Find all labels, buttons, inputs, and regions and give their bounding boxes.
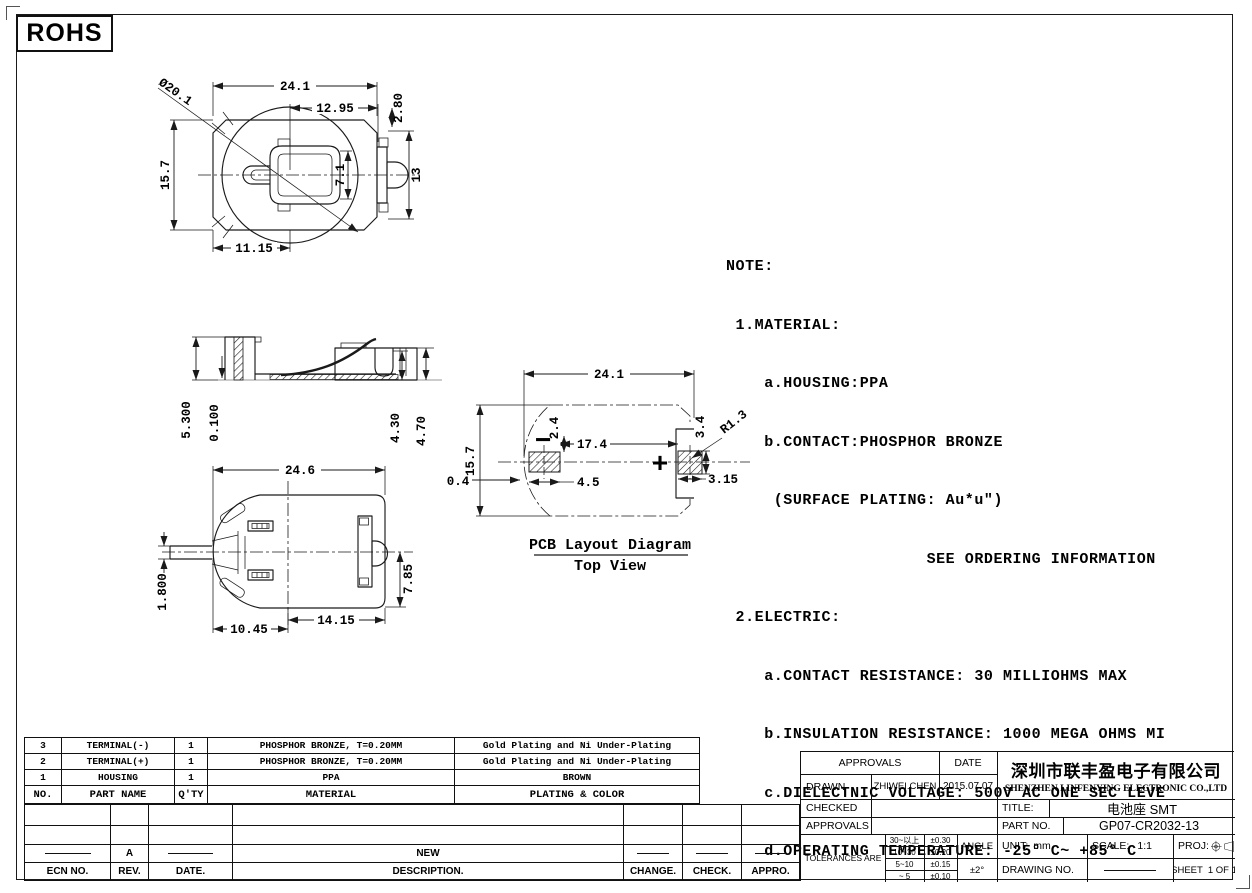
revision-header-cell: ECN NO. xyxy=(25,863,111,880)
bom-cell: 1 xyxy=(25,770,62,786)
revision-header-cell: CHANGE. xyxy=(624,863,683,880)
tolerance-value: ±0.15 xyxy=(924,858,957,870)
revision-cell xyxy=(25,845,111,863)
angle-label: ANGLE xyxy=(957,834,997,858)
pcb-caption-title: PCB Layout Diagram xyxy=(529,537,691,554)
revision-table: A NEW ECN NO. REV. DATE. DESCRIPTION. CH… xyxy=(24,804,800,881)
dim-label: 24.6 xyxy=(285,464,315,478)
dim-label: 0.100 xyxy=(208,404,222,442)
checked-label: CHECKED xyxy=(801,799,871,817)
sheet-label: SHEET xyxy=(1173,865,1203,876)
part-outline-top xyxy=(550,405,690,422)
projection-cell: PROJ: xyxy=(1173,834,1235,858)
bottom-view-dimensions: 24.6 1.800 10.45 14.15 7.85 xyxy=(156,464,416,637)
drawn-date: 2015.07.07 xyxy=(939,774,997,799)
dim-label: 2.4 xyxy=(548,416,562,439)
title-label: TITLE: xyxy=(997,799,1049,817)
dim-label: 4.70 xyxy=(415,416,429,446)
dim-label: 10.45 xyxy=(230,623,268,637)
drawing-sheet: ROHS 24.1 xyxy=(0,0,1252,893)
revision-cell xyxy=(742,845,799,863)
bom-cell: PPA xyxy=(208,770,455,786)
company-name-cn: 深圳市联丰盈电子有限公司 xyxy=(1011,757,1221,782)
part-outline-bottom xyxy=(550,499,690,516)
tolerance-range: 5~10 xyxy=(885,858,924,870)
plus-symbol: + xyxy=(652,450,669,481)
tolerance-range: 30~以上 xyxy=(885,834,924,846)
placeholder-dash xyxy=(168,853,214,854)
title-value: 电池座 SMT xyxy=(1049,799,1235,817)
bom-cell: Gold Plating and Ni Under-Plating xyxy=(455,754,699,770)
top-view-geometry xyxy=(158,88,420,243)
terminal-pad-bottom xyxy=(379,203,388,212)
dim-label: 1.800 xyxy=(156,573,170,611)
scale-label: SCALE: xyxy=(1092,840,1129,852)
placeholder-dash xyxy=(755,853,786,854)
dim-label: 0.4 xyxy=(447,475,470,489)
tolerance-range: 10~30 xyxy=(885,846,924,858)
third-angle-projection-icon xyxy=(1211,838,1235,855)
revision-cell xyxy=(233,805,624,826)
sheet-cell: SHEET 1 OF 1 xyxy=(1173,858,1235,882)
dim-label: 13 xyxy=(410,167,424,182)
bom-cell: 1 xyxy=(175,754,208,770)
pcb-captions: PCB Layout Diagram Top View xyxy=(529,537,691,575)
dim-label: 12.95 xyxy=(316,102,354,116)
bom-cell: TERMINAL(+) xyxy=(62,754,175,770)
bom-cell: HOUSING xyxy=(62,770,175,786)
revision-cell xyxy=(624,805,683,826)
placeholder-dash xyxy=(45,853,91,854)
projection-label: PROJ: xyxy=(1178,840,1209,852)
revision-rev-value: A xyxy=(111,845,149,863)
dim-label: 5.300 xyxy=(180,401,194,439)
unit-cell: UNIT: mm xyxy=(997,834,1087,858)
bom-cell: 1 xyxy=(175,770,208,786)
placeholder-dash xyxy=(696,853,728,854)
revision-cell xyxy=(742,826,799,845)
rohs-label: ROHS xyxy=(26,19,102,48)
note-line: b.CONTACT:PHOSPHOR BRONZE xyxy=(726,433,1165,453)
bom-cell: Gold Plating and Ni Under-Plating xyxy=(455,738,699,754)
part-no-value: GP07-CR2032-13 xyxy=(1063,817,1235,834)
dim-label: 4.5 xyxy=(577,476,600,490)
dim-label: 15.7 xyxy=(159,160,173,190)
revision-cell xyxy=(25,805,111,826)
side-view-dimensions: 5.300 0.100 4.30 4.70 xyxy=(180,337,434,446)
bom-cell: PHOSPHOR BRONZE, T=0.20MM xyxy=(208,754,455,770)
company-block: 深圳市联丰盈电子有限公司 SHENZHEN LINFENYING ELECTRO… xyxy=(997,752,1235,799)
note-line: 1.MATERIAL: xyxy=(726,316,1165,336)
approvals-header: APPROVALS xyxy=(801,752,939,774)
note-line: SEE ORDERING INFORMATION xyxy=(726,550,1165,570)
revision-header-cell: DATE. xyxy=(149,863,233,880)
rohs-logo: ROHS xyxy=(16,15,113,52)
dim-label: 17.4 xyxy=(577,438,608,452)
pcb-dimensions: 24.1 15.7 0.4 2.4 17.4 4.5 3.4 R1.3 3.15 xyxy=(447,368,750,516)
note-line: NOTE: xyxy=(726,257,1165,277)
dim-label: 15.7 xyxy=(464,446,478,476)
bom-header-cell: PART NAME xyxy=(62,786,175,803)
housing-outline xyxy=(213,495,385,608)
scale-cell: SCALE: 1:1 xyxy=(1087,834,1173,858)
contact-tab-top xyxy=(278,139,290,146)
dim-label: 11.15 xyxy=(235,242,273,256)
positive-terminal-bar xyxy=(358,516,372,587)
left-wall-hatch xyxy=(234,337,243,380)
bom-header-cell: PLATING & COLOR xyxy=(455,786,699,803)
revision-cell xyxy=(149,845,233,863)
corner-mark-bottom-right xyxy=(1236,875,1250,889)
revision-cell xyxy=(742,805,799,826)
terminal-funnel xyxy=(212,531,245,574)
bom-cell: 3 xyxy=(25,738,62,754)
terminal-pad-bottom xyxy=(360,578,369,585)
drawn-by: ZHIWEI.CHEN xyxy=(871,774,939,799)
revision-cell xyxy=(149,805,233,826)
tolerance-range: ~ 5 xyxy=(885,870,924,882)
top-view-dimensions: 24.1 12.95 2.80 13 15.7 7.1 11.15 Ø20.1 xyxy=(156,76,424,256)
dim-label: 7.85 xyxy=(402,564,416,594)
tolerance-value: ±0.30 xyxy=(924,834,957,846)
bottom-view-drawing: 24.6 1.800 10.45 14.15 7.85 xyxy=(148,448,468,648)
dim-label: 2.80 xyxy=(392,93,406,123)
part-no-label: PART NO. xyxy=(997,817,1063,834)
spring-contact-arm xyxy=(281,339,376,375)
right-block-ribs xyxy=(400,348,406,376)
note-line: a.HOUSING:PPA xyxy=(726,374,1165,394)
placeholder-dash xyxy=(1104,870,1156,871)
bom-cell: 2 xyxy=(25,754,62,770)
revision-cell xyxy=(683,805,742,826)
revision-description-value: NEW xyxy=(233,845,624,863)
dim-label: 14.15 xyxy=(317,614,355,628)
top-view-drawing: 24.1 12.95 2.80 13 15.7 7.1 11.15 Ø20.1 xyxy=(128,62,442,262)
revision-header-cell: CHECK. xyxy=(683,863,742,880)
dim-label: 3.4 xyxy=(694,415,708,438)
revision-header-cell: APPRO. xyxy=(742,863,799,880)
revision-header-cell: DESCRIPTION. xyxy=(233,863,624,880)
sheet-value: 1 OF 1 xyxy=(1208,865,1235,876)
side-view-geometry xyxy=(218,337,442,380)
revision-cell xyxy=(111,805,149,826)
scale-value: 1:1 xyxy=(1137,840,1152,852)
negative-terminal-pin xyxy=(170,546,212,559)
revision-cell xyxy=(624,826,683,845)
date-header: DATE xyxy=(939,752,997,774)
drawing-no-label: DRAWING NO. xyxy=(997,858,1087,882)
left-wall-step xyxy=(255,337,261,342)
bom-header-cell: Q'TY xyxy=(175,786,208,803)
dim-label: 4.30 xyxy=(389,413,403,443)
bom-header-cell: MATERIAL xyxy=(208,786,455,803)
note-line: a.CONTACT RESISTANCE: 30 MILLIOHMS MAX xyxy=(726,667,1165,687)
slot-window-bottom-inner xyxy=(252,573,269,578)
tolerances-label: TOLERANCES ARE xyxy=(801,834,885,882)
pcb-caption-subtitle: Top View xyxy=(574,558,646,575)
revision-cell xyxy=(111,826,149,845)
bom-cell: BROWN xyxy=(455,770,699,786)
dim-label: 24.1 xyxy=(594,368,624,382)
dim-label: 7.1 xyxy=(334,164,348,187)
dim-label-diameter: Ø20.1 xyxy=(156,76,195,109)
note-line: b.INSULATION RESISTANCE: 1000 MEGA OHMS … xyxy=(726,725,1165,745)
title-block: APPROVALS DATE DRAWN ZHIWEI.CHEN 2015.07… xyxy=(800,751,1234,881)
u-contact xyxy=(375,348,393,376)
tolerance-value: ±0.20 xyxy=(924,846,957,858)
revision-cell xyxy=(683,845,742,863)
approvals-label: APPROVALS xyxy=(801,817,871,834)
contact-tab-bottom xyxy=(278,204,290,211)
drawn-label: DRAWN xyxy=(801,774,871,799)
note-line: 2.ELECTRIC: xyxy=(726,608,1165,628)
pcb-outline: − + xyxy=(498,405,750,516)
revision-cell xyxy=(25,826,111,845)
bom-header-cell: NO. xyxy=(25,786,62,803)
unit-value: mm xyxy=(1033,840,1051,852)
tolerance-value: ±0.10 xyxy=(924,870,957,882)
pcb-layout-view-drawing: − + 24.1 15.7 0.4 2.4 17.4 4.5 3.4 R1. xyxy=(438,358,760,583)
placeholder-dash xyxy=(637,853,669,854)
bom-cell: TERMINAL(-) xyxy=(62,738,175,754)
revision-cell xyxy=(233,826,624,845)
bom-table: 3 TERMINAL(-) 1 PHOSPHOR BRONZE, T=0.20M… xyxy=(24,737,700,804)
terminal-pad-top xyxy=(379,138,388,147)
slot-window-top-inner xyxy=(252,524,269,529)
arc-slot-top xyxy=(219,502,247,524)
bom-cell: PHOSPHOR BRONZE, T=0.20MM xyxy=(208,738,455,754)
arc-slot-bottom xyxy=(218,577,246,599)
bom-cell: 1 xyxy=(175,738,208,754)
drawing-no-value xyxy=(1087,858,1173,882)
revision-cell xyxy=(624,845,683,863)
revision-cell xyxy=(149,826,233,845)
terminal-pad-top xyxy=(360,518,369,525)
revision-cell xyxy=(683,826,742,845)
company-name-en: SHENZHEN LINFENYING ELECTRONIC CO.,LTD xyxy=(1005,784,1227,794)
note-line: (SURFACE PLATING: Au*u″) xyxy=(726,491,1165,511)
angle-tolerance: ±2° xyxy=(957,858,997,882)
revision-header-cell: REV. xyxy=(111,863,149,880)
unit-label: UNIT: xyxy=(1002,840,1028,852)
dim-label: 24.1 xyxy=(280,80,310,94)
bottom-view-geometry xyxy=(162,481,413,625)
